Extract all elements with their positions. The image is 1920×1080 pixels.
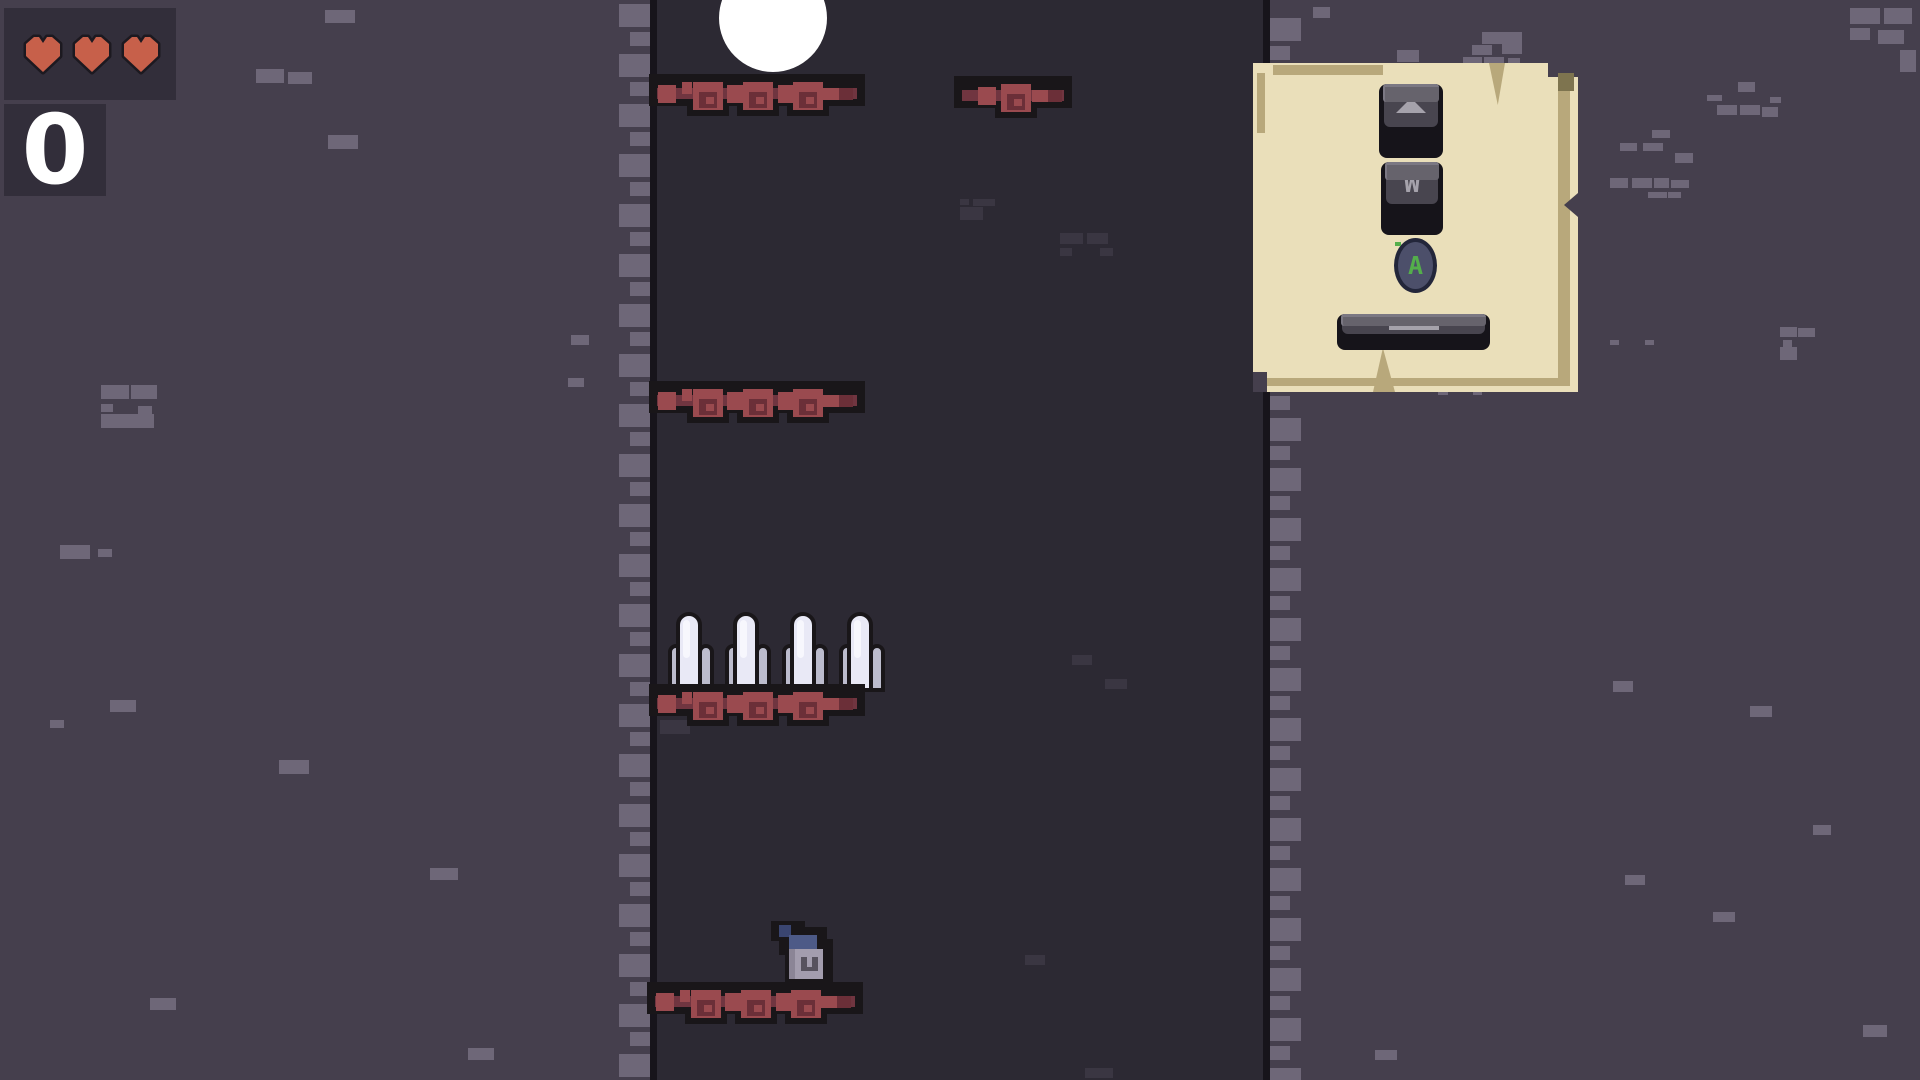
wall-brick (630, 682, 650, 696)
brick-speckle (1780, 327, 1797, 337)
brick-speckle (1085, 1068, 1113, 1078)
wall-brick (619, 904, 650, 927)
platform-block-pattern (756, 404, 764, 411)
brick-speckle (110, 700, 136, 712)
wall-brick (619, 54, 650, 77)
platform-block-pattern (706, 707, 714, 714)
brick-speckle (960, 199, 969, 205)
brick-speckle (1863, 1025, 1887, 1037)
wall-brick (619, 804, 650, 827)
wall-brick (630, 82, 650, 96)
player-body-side (789, 949, 795, 979)
platform-block-large (791, 990, 821, 1018)
wall-brick (1270, 568, 1301, 591)
wall-brick (619, 454, 650, 477)
a-button-face: A (1398, 242, 1433, 289)
brick-speckle (1652, 130, 1670, 138)
wall-brick (1270, 1068, 1301, 1080)
brick-speckle (60, 545, 90, 559)
wall-brick (630, 382, 650, 396)
brick-speckle (325, 10, 355, 23)
brick-speckle (1850, 8, 1880, 24)
sign-paper-tear (1373, 348, 1395, 392)
platform (954, 76, 1072, 124)
spike (733, 612, 759, 692)
up-arrow-key (1379, 84, 1443, 158)
platform (647, 982, 863, 1030)
heart-icon (20, 31, 66, 77)
wall-brick (1270, 496, 1290, 510)
brick-speckle (1087, 233, 1108, 244)
brick-speckle (1643, 143, 1663, 151)
brick-speckle (138, 406, 152, 414)
wall-brick (619, 754, 650, 777)
brick-speckle (1675, 153, 1693, 163)
spike-highlight (797, 620, 804, 658)
platform-block-end (821, 996, 837, 1008)
brick-speckle (960, 207, 983, 220)
brick-speckle (101, 404, 113, 412)
brick-speckle (1313, 7, 1330, 18)
wall-brick (1270, 1018, 1301, 1041)
player-mouth (801, 967, 818, 971)
brick-speckle (1625, 875, 1645, 885)
sign-paper-tear (1489, 63, 1505, 105)
brick-speckle (1100, 248, 1113, 256)
spikes (839, 612, 885, 692)
wall-brick (1270, 418, 1301, 441)
brick-speckle (1707, 95, 1722, 101)
wall-brick (619, 854, 650, 877)
brick-speckle (571, 335, 589, 345)
platform-block-end (839, 395, 853, 407)
brick-speckle (1397, 50, 1419, 62)
brick-speckle (1072, 655, 1092, 665)
platform-block (658, 392, 676, 410)
wall-brick (1270, 918, 1301, 941)
wall-brick (1270, 968, 1301, 991)
platform-block-large (693, 692, 723, 720)
space-key-front (1341, 314, 1486, 326)
spikes (725, 612, 771, 692)
brick-speckle (1884, 8, 1912, 24)
platform-block (682, 389, 692, 401)
brick-speckle (430, 868, 458, 880)
wall-brick (619, 404, 650, 427)
sign-paper-shade (1273, 65, 1383, 75)
spike (847, 612, 873, 692)
wall-brick (630, 782, 650, 796)
key-letter: A (1408, 251, 1423, 280)
brick-speckle (1738, 82, 1755, 92)
brick-speckle (1780, 347, 1797, 360)
spikes (782, 612, 828, 692)
platform-block (658, 85, 676, 103)
wall-brick (619, 604, 650, 627)
wall-brick (630, 532, 650, 546)
spike-highlight (854, 620, 861, 658)
platform-block-large (691, 990, 721, 1018)
wall-brick (630, 832, 650, 846)
wall-brick (1270, 996, 1290, 1010)
wall-brick (619, 304, 650, 327)
platform-block-large (743, 692, 773, 720)
spike (790, 612, 816, 692)
platform-block (682, 82, 692, 94)
platform-block-pattern (754, 1005, 762, 1012)
wall-brick (619, 1004, 650, 1027)
wall-brick (1270, 46, 1290, 60)
brick-speckle (1025, 955, 1045, 965)
sign-paper-shade (1558, 75, 1570, 378)
wall-brick (630, 882, 650, 896)
wall-brick (1270, 768, 1301, 791)
platform-block-pattern (1014, 99, 1022, 106)
brick-speckle (1783, 340, 1792, 347)
brick-speckle (1671, 180, 1689, 188)
wall-brick (619, 4, 650, 27)
brick-speckle (150, 998, 176, 1010)
left-wall-edge-line (650, 0, 657, 1080)
platform-block-pattern (706, 404, 714, 411)
platform-block-pattern (704, 1005, 712, 1012)
brick-speckle (101, 414, 129, 428)
platform-block-large (793, 389, 823, 417)
platform-block (656, 993, 674, 1011)
wall-brick (1270, 696, 1290, 710)
platform-block (680, 990, 690, 1002)
brick-speckle (279, 760, 309, 774)
w-key-front (1385, 162, 1439, 180)
wall-brick (630, 482, 650, 496)
wall-brick (619, 554, 650, 577)
brick-speckle (1610, 340, 1619, 345)
brick-speckle (568, 378, 584, 387)
brick-speckle (1375, 1050, 1397, 1060)
platform-block-large (693, 389, 723, 417)
brick-speckle (1620, 143, 1637, 151)
platform-block-large (793, 82, 823, 110)
wall-brick (619, 504, 650, 527)
platform (649, 684, 865, 732)
platform-block-pattern (806, 707, 814, 714)
wall-brick (1270, 396, 1290, 410)
wall-brick (630, 232, 650, 246)
platform-block-pattern (756, 707, 764, 714)
wall-brick (1270, 846, 1290, 860)
brick-speckle (256, 69, 284, 83)
game-viewport[interactable]: WA 0 (0, 0, 1920, 1080)
sign-corner-shadow (1558, 73, 1574, 91)
brick-speckle (1668, 192, 1681, 198)
brick-speckle (1613, 681, 1633, 692)
counter-panel: 0 (4, 104, 106, 196)
brick-speckle (1105, 679, 1127, 689)
brick-speckle (328, 135, 358, 149)
wall-brick (619, 104, 650, 127)
spikes (668, 612, 714, 692)
platform-block-large (743, 389, 773, 417)
platform-block-end (839, 88, 853, 100)
brick-speckle (1472, 45, 1492, 55)
brick-speckle (1632, 178, 1652, 188)
platform-block-end (839, 698, 853, 710)
platform-block-large (743, 82, 773, 110)
counter-value: 0 (22, 105, 89, 195)
wall-brick (1270, 646, 1290, 660)
wall-brick (619, 154, 650, 177)
platform-block-large (1001, 84, 1031, 112)
platform-block-pattern (756, 97, 764, 104)
w-key: W (1381, 162, 1443, 235)
platform-block (658, 695, 676, 713)
platform-block-end (1048, 90, 1062, 102)
brick-speckle (128, 414, 154, 428)
wall-brick (630, 432, 650, 446)
platform-block (978, 87, 996, 105)
a-accent-dot (1395, 242, 1401, 246)
brick-speckle (131, 385, 157, 399)
wall-brick (619, 1054, 650, 1077)
wall-brick (1270, 446, 1290, 460)
brick-speckle (1762, 107, 1778, 117)
wall-brick (619, 704, 650, 727)
wall-brick (1270, 896, 1290, 910)
up-arrow-key-front (1383, 84, 1439, 102)
wall-brick (1270, 718, 1301, 741)
heart-icon (69, 31, 115, 77)
wall-brick (1270, 1046, 1290, 1060)
wall-brick (630, 582, 650, 596)
brick-speckle (1900, 50, 1916, 72)
spike-highlight (683, 620, 690, 658)
wall-brick (630, 932, 650, 946)
brick-speckle (468, 1048, 494, 1060)
brick-speckle (1645, 340, 1654, 345)
shaft-region (657, 0, 1263, 1080)
brick-speckle (1060, 233, 1083, 244)
platform-block-end (1032, 90, 1048, 102)
platform-block (682, 692, 692, 704)
wall-brick (1270, 518, 1301, 541)
sign-corner-cut (1253, 372, 1267, 392)
brick-speckle (1648, 192, 1667, 198)
platform-block-end (823, 698, 839, 710)
space-key (1337, 314, 1490, 350)
brick-speckle (1878, 30, 1904, 44)
brick-speckle (1502, 44, 1522, 54)
wall-brick (619, 954, 650, 977)
wall-brick (1270, 18, 1301, 41)
wall-brick (630, 332, 650, 346)
brick-speckle (1654, 178, 1669, 188)
wall-brick (619, 204, 650, 227)
brick-speckle (1740, 105, 1760, 115)
player-character (771, 921, 833, 988)
brick-speckle (973, 199, 995, 206)
brick-speckle (1610, 178, 1628, 188)
platform-block-end (823, 88, 839, 100)
brick-speckle (1713, 912, 1735, 922)
wall-brick (630, 32, 650, 46)
platform-block-pattern (806, 97, 814, 104)
brick-speckle (1813, 825, 1831, 835)
brick-speckle (1850, 28, 1870, 40)
brick-speckle (1060, 248, 1072, 256)
sign-paper-shade (1259, 378, 1570, 386)
brick-speckle (50, 720, 64, 728)
brick-speckle (1750, 706, 1772, 717)
wall-brick (630, 732, 650, 746)
spike (676, 612, 702, 692)
wall-brick (619, 354, 650, 377)
brick-speckle (101, 385, 129, 399)
wall-brick (1270, 668, 1301, 691)
wall-brick (1270, 546, 1290, 560)
platform-block-end (837, 996, 851, 1008)
brick-speckle (1717, 105, 1737, 115)
wall-brick (1270, 796, 1290, 810)
platform-block-pattern (706, 97, 714, 104)
wall-brick (1270, 868, 1301, 891)
platform-block-large (693, 82, 723, 110)
wall-brick (619, 654, 650, 677)
wall-brick (1270, 746, 1290, 760)
wall-brick (1270, 818, 1301, 841)
brick-speckle (1770, 97, 1781, 103)
brick-speckle (288, 72, 312, 84)
wall-brick (619, 254, 650, 277)
platform-block-end (823, 395, 839, 407)
wall-brick (630, 282, 650, 296)
platform-block-pattern (806, 404, 814, 411)
platform (649, 381, 865, 429)
wall-brick (1270, 596, 1290, 610)
player-face (795, 949, 823, 979)
wall-brick (630, 1032, 650, 1046)
platform (649, 74, 865, 122)
wall-brick (630, 632, 650, 646)
a-button: A (1394, 238, 1437, 293)
platform-block-large (741, 990, 771, 1018)
tutorial-sign: WA (1253, 63, 1578, 392)
brick-speckle (1482, 32, 1522, 44)
platform-block-large (793, 692, 823, 720)
player-cap (789, 935, 817, 949)
sign-paper-shade (1257, 73, 1265, 133)
wall-brick (1270, 468, 1301, 491)
wall-brick (1270, 618, 1301, 641)
brick-speckle (1798, 328, 1815, 337)
wall-brick (630, 182, 650, 196)
brick-speckle (98, 549, 112, 557)
wall-brick (630, 132, 650, 146)
heart-icon (118, 31, 164, 77)
platform-block-pattern (804, 1005, 812, 1012)
wall-brick (1270, 946, 1290, 960)
spike-highlight (740, 620, 747, 658)
health-panel (4, 8, 176, 100)
